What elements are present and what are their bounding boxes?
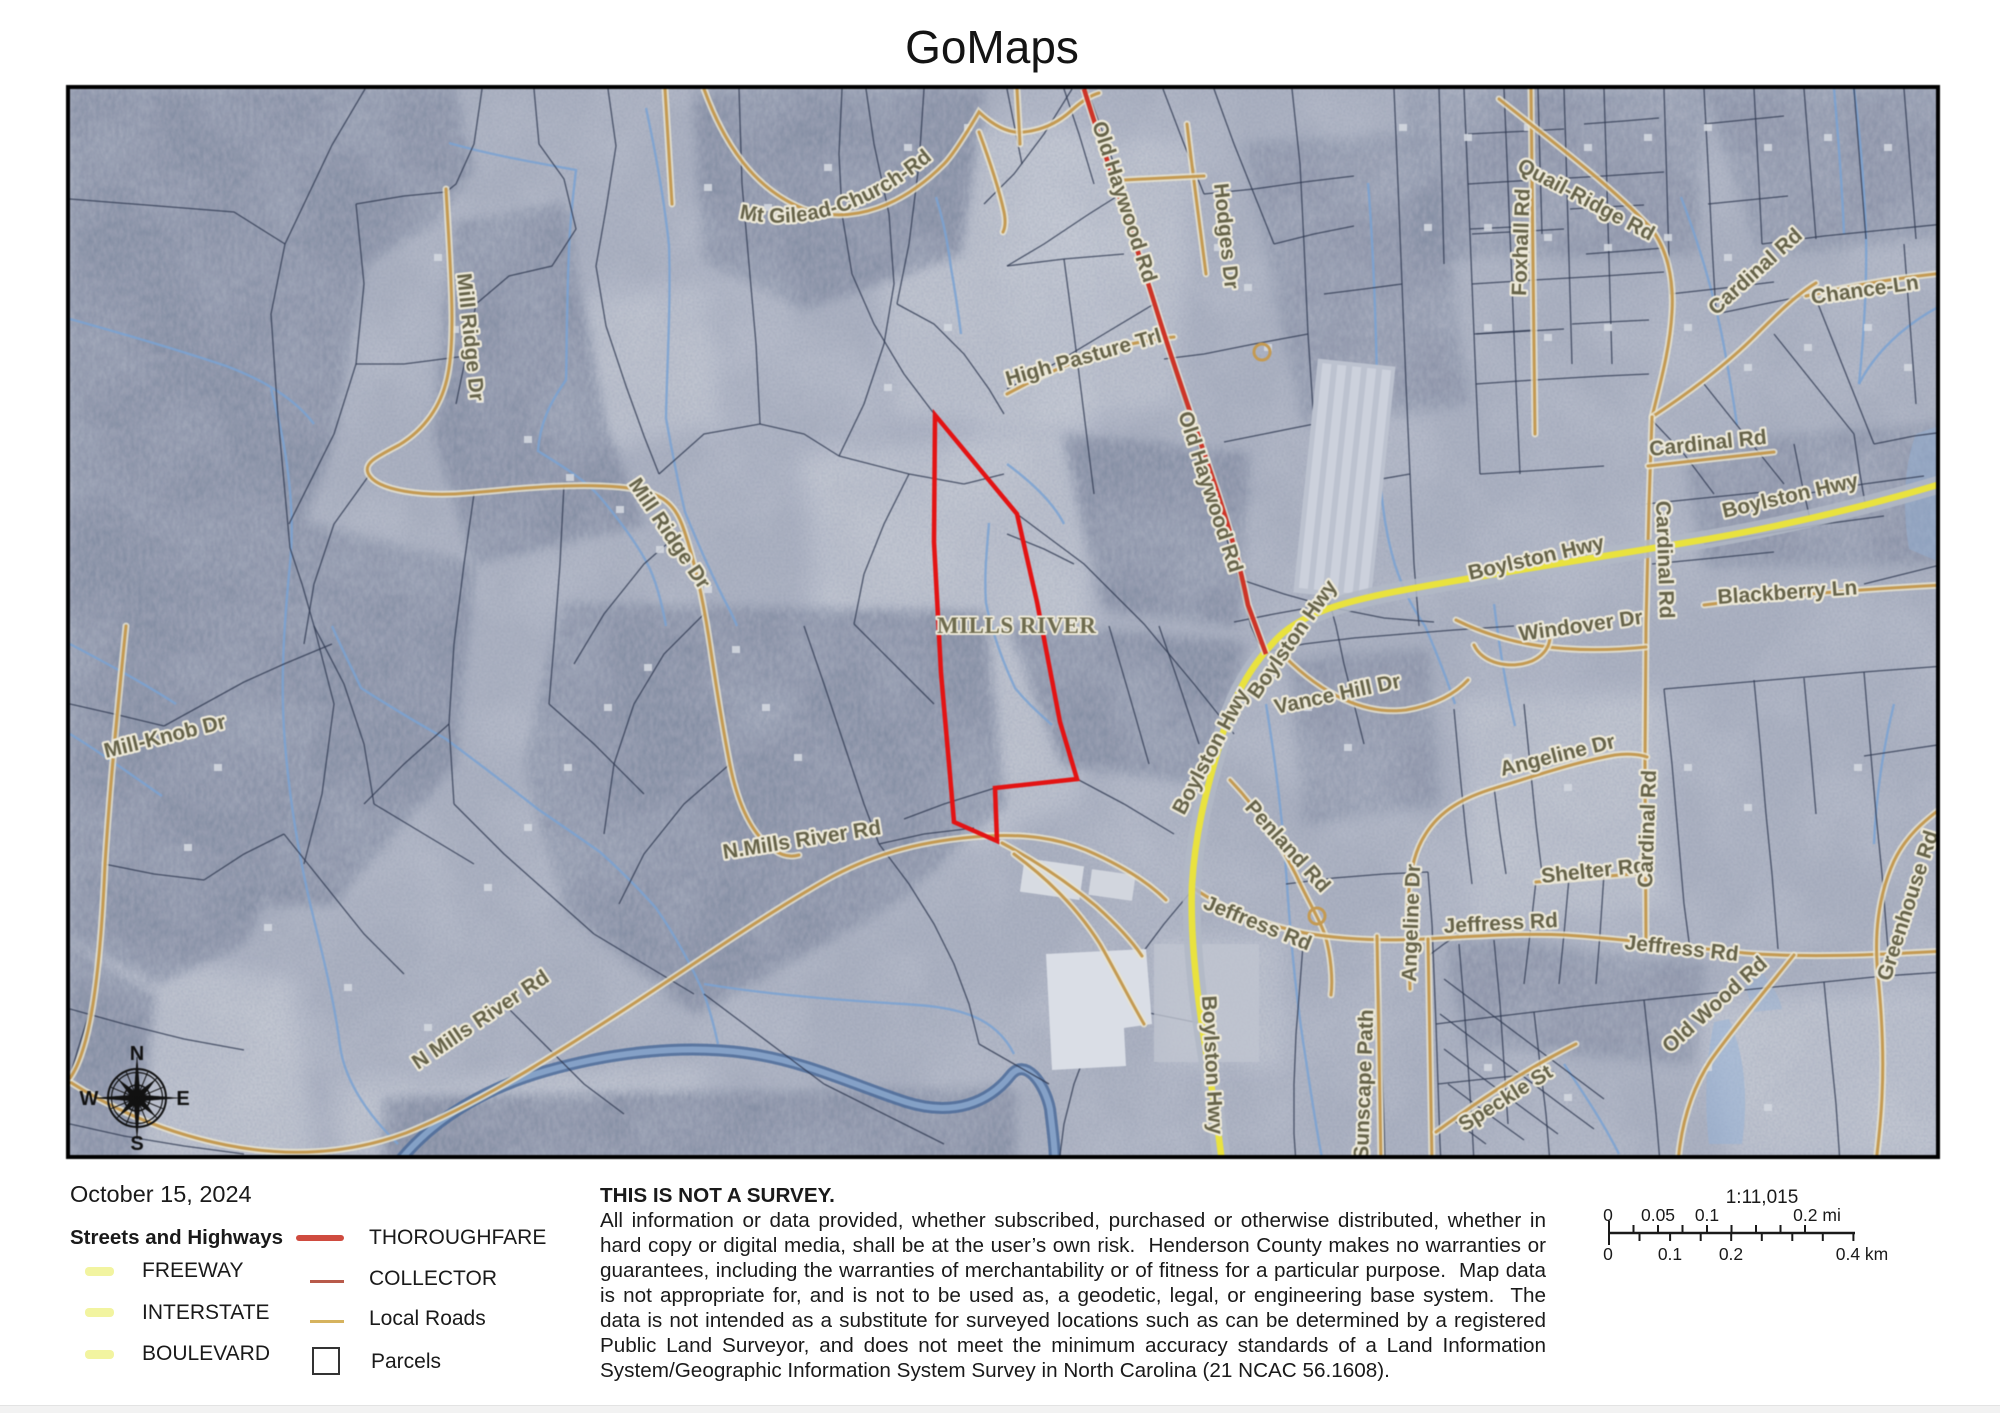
svg-text:Foxhall Rd: Foxhall Rd — [1508, 188, 1535, 296]
svg-text:S: S — [130, 1133, 143, 1155]
svg-text:0.1: 0.1 — [1658, 1244, 1682, 1264]
svg-text:Cardinal Rd: Cardinal Rd — [1634, 770, 1661, 889]
svg-text:MILLS RIVER: MILLS RIVER — [937, 613, 1097, 638]
svg-text:E: E — [176, 1088, 189, 1110]
svg-text:0: 0 — [1603, 1244, 1613, 1264]
svg-text:0.1: 0.1 — [1695, 1205, 1719, 1225]
svg-text:0.05: 0.05 — [1641, 1205, 1675, 1225]
svg-text:Cardinal Rd: Cardinal Rd — [1651, 500, 1678, 619]
svg-text:N: N — [130, 1043, 144, 1065]
svg-text:1:11,015: 1:11,015 — [1726, 1187, 1799, 1208]
svg-text:0.4 km: 0.4 km — [1836, 1244, 1889, 1264]
svg-text:0.2 mi: 0.2 mi — [1793, 1205, 1841, 1225]
svg-text:Angeline Dr: Angeline Dr — [1398, 864, 1425, 983]
svg-text:W: W — [80, 1088, 99, 1110]
svg-text:0.2: 0.2 — [1719, 1244, 1743, 1264]
